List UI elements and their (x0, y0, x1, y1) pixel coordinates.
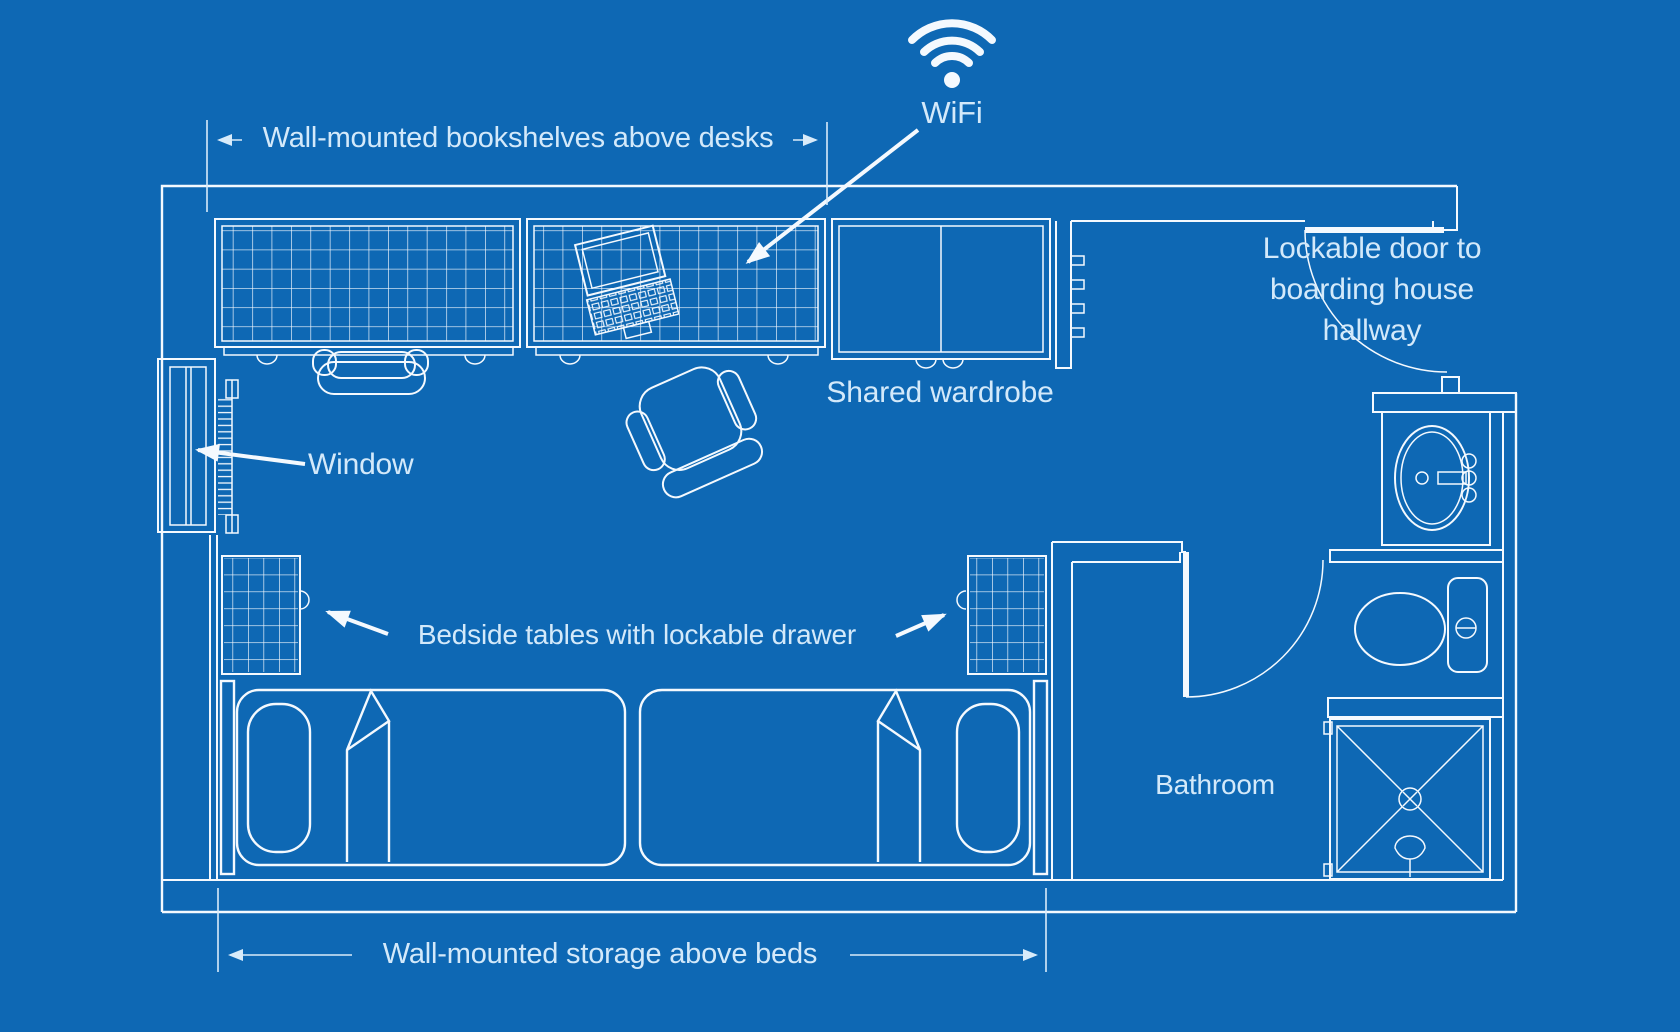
label-wardrobe: Shared wardrobe (790, 376, 1090, 411)
label-entry-door-line3: hallway (1222, 310, 1522, 351)
bedside-arrow-right (896, 615, 944, 636)
bed-1 (221, 681, 625, 874)
label-entry-door-line2: boarding house (1222, 269, 1522, 310)
desk-2 (527, 219, 825, 364)
label-entry-door: Lockable door to boarding house hallway (1222, 228, 1522, 351)
bedside-table-1 (222, 556, 309, 674)
bed-2 (640, 681, 1047, 874)
label-storage: Wall-mounted storage above beds (350, 938, 850, 971)
desk-chair-1 (313, 350, 428, 394)
bathroom-door (1186, 552, 1323, 697)
label-bedside: Bedside tables with lockable drawer (382, 619, 892, 651)
label-bookshelves: Wall-mounted bookshelves above desks (232, 122, 804, 155)
bedside-table-2 (957, 556, 1046, 674)
label-window: Window (308, 448, 448, 483)
floor-plan: Wall-mounted bookshelves above desks WiF… (0, 0, 1680, 1032)
toilet (1355, 578, 1487, 672)
wardrobe (832, 219, 1050, 368)
desk-chair-2 (617, 354, 774, 505)
coat-hooks (1071, 256, 1084, 337)
label-bathroom: Bathroom (1115, 769, 1315, 801)
desk-1 (215, 219, 520, 364)
label-wifi: WiFi (902, 95, 1002, 131)
window (158, 359, 238, 533)
label-entry-door-line1: Lockable door to (1222, 228, 1522, 269)
shower (1324, 719, 1490, 879)
wifi-icon (912, 23, 992, 88)
bedside-arrow-left (328, 612, 388, 634)
sink (1373, 377, 1516, 545)
